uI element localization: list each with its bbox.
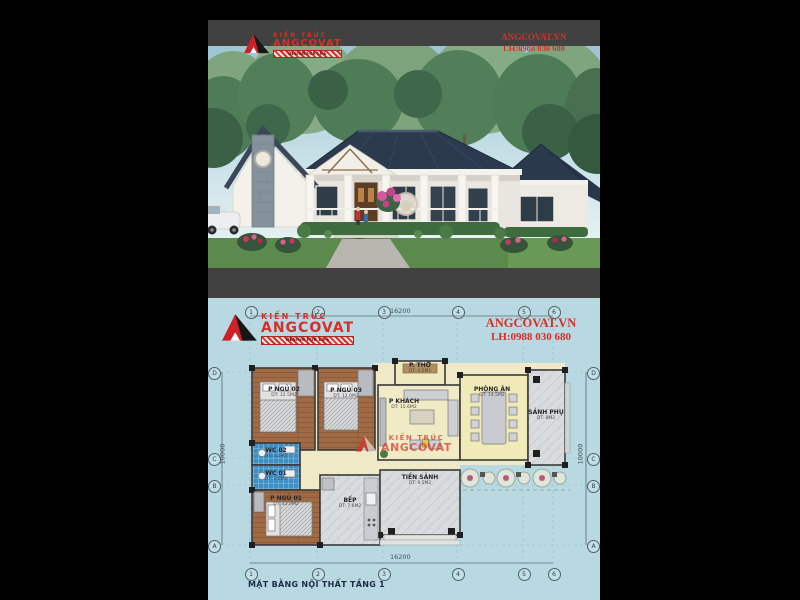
grid-row-a-left: A xyxy=(208,540,221,553)
poster-canvas: KIẾN TRÚC ANGCOVAT DESIGN FOR LIFE ANGCO… xyxy=(0,0,800,600)
angcovat-watermark: KIẾN TRÚC ANGCOVAT xyxy=(356,434,452,454)
angcovat-logo-plan: KIẾN TRÚC ANGCOVAT DESIGN FOR LIFE xyxy=(222,312,354,345)
grid-col-6-bottom: 6 xyxy=(548,568,561,581)
grid-col-2-bottom: 2 xyxy=(312,568,325,581)
round-window xyxy=(255,151,271,167)
dim-width-bottom: 16200 xyxy=(390,553,411,561)
grid-row-a-right: A xyxy=(587,540,600,553)
dim-width-top: 16200 xyxy=(390,307,411,315)
dim-height-right: 10000 xyxy=(576,444,584,465)
watermark-angcovat: ANGCOVAT xyxy=(381,442,452,454)
room-porch xyxy=(380,470,460,535)
website-text: ANGCOVAT.VN xyxy=(470,316,592,330)
grid-row-d-right: D xyxy=(587,367,600,380)
window-3 xyxy=(468,188,488,222)
garden-symbols xyxy=(461,469,570,490)
watermark-logo-icon xyxy=(356,434,378,454)
grid-col-5-bottom: 5 xyxy=(518,568,531,581)
logo-tagline: DESIGN FOR LIFE xyxy=(261,336,354,345)
angcovat-logo-icon xyxy=(222,312,258,344)
grid-col-1-bottom: 1 xyxy=(245,568,258,581)
angcovat-logo-icon xyxy=(244,32,270,56)
grid-col-3-top: 3 xyxy=(378,306,391,319)
house-3d-render xyxy=(208,46,600,268)
plan-title: MẶT BẰNG NỘI THẤT TẦNG 1 xyxy=(248,580,385,589)
logo-angcovat: ANGCOVAT xyxy=(273,39,342,49)
grid-col-4-bottom: 4 xyxy=(452,568,465,581)
grid-col-3-bottom: 3 xyxy=(378,568,391,581)
website-text: ANGCOVAT.VN xyxy=(474,32,594,43)
window-1 xyxy=(316,186,338,216)
grid-row-c-right: C xyxy=(587,453,600,466)
logo-angcovat: ANGCOVAT xyxy=(261,321,354,335)
grid-row-d-left: D xyxy=(208,367,221,380)
logo-tagline: DESIGN FOR LIFE xyxy=(273,50,342,58)
exterior-render-panel: KIẾN TRÚC ANGCOVAT DESIGN FOR LIFE ANGCO… xyxy=(208,20,600,298)
photo-contact: ANGCOVAT.VN LH:0988 030 680 xyxy=(474,32,594,54)
floor-plan-panel: 1 2 3 4 5 6 1 2 3 4 5 6 D C B A D C B A … xyxy=(208,298,600,600)
angcovat-logo-photo: KIẾN TRÚC ANGCOVAT DESIGN FOR LIFE xyxy=(244,32,342,58)
grid-row-b-left: B xyxy=(208,480,221,493)
phone-text: LH:0988 030 680 xyxy=(474,43,594,54)
plan-contact: ANGCOVAT.VN LH:0988 030 680 xyxy=(470,316,592,344)
grid-col-4-top: 4 xyxy=(452,306,465,319)
phone-text: LH:0988 030 680 xyxy=(470,330,592,344)
grid-row-b-right: B xyxy=(587,480,600,493)
dim-height-left: 10000 xyxy=(218,444,226,465)
stone-chimney xyxy=(252,135,274,227)
